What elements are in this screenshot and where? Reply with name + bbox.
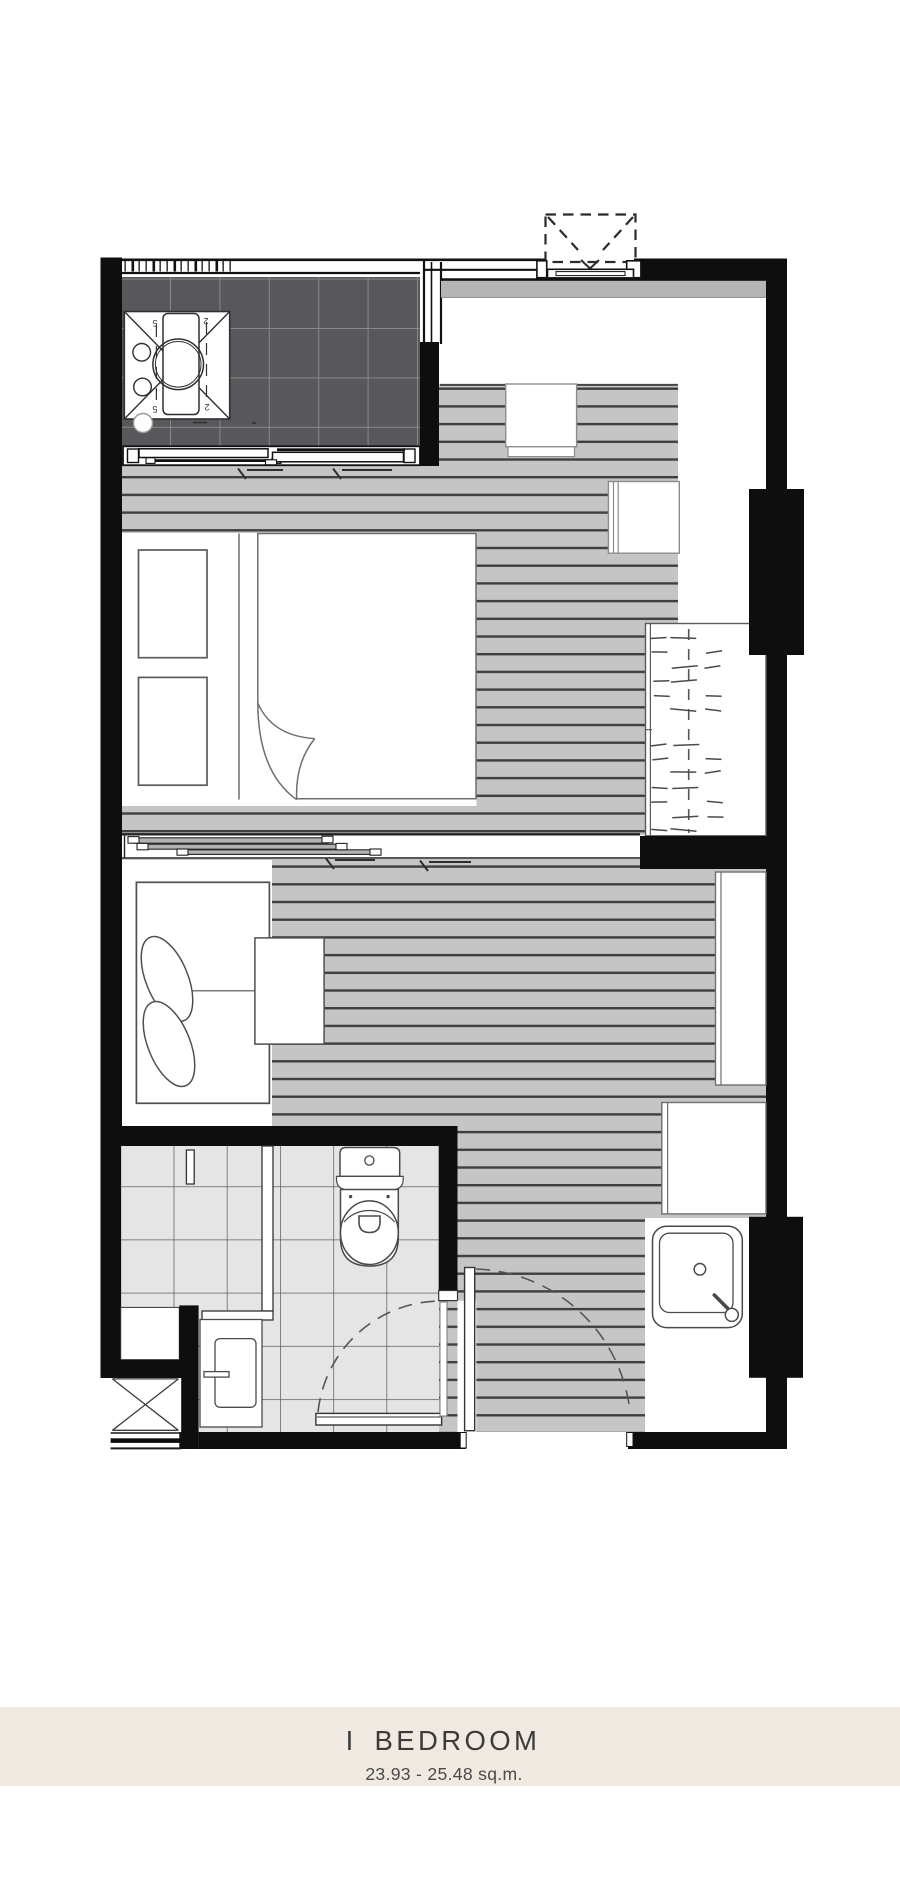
svg-text:2: 2 [204, 402, 209, 412]
svg-text:23.93 - 25.48 sq.m.: 23.93 - 25.48 sq.m. [365, 1764, 522, 1784]
svg-text:5: 5 [152, 318, 157, 328]
svg-text:5: 5 [152, 404, 157, 414]
svg-text:I BEDROOM: I BEDROOM [346, 1725, 541, 1756]
svg-text:2: 2 [203, 316, 208, 326]
